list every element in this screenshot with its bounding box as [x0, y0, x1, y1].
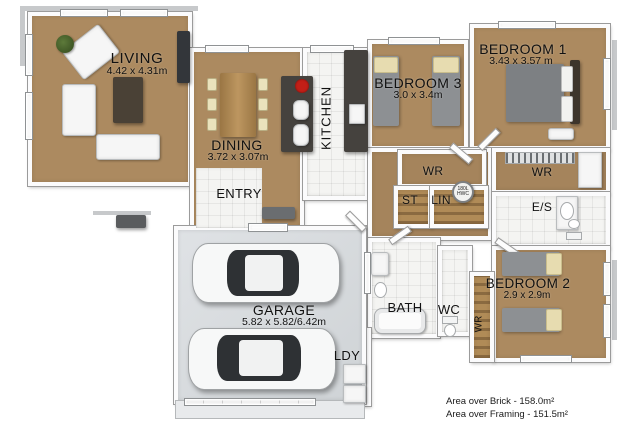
area-annotations: Area over Brick - 158.0m² Area over Fram…	[446, 396, 568, 421]
sink	[293, 100, 309, 120]
sink	[293, 124, 309, 146]
window	[25, 92, 33, 140]
garage-door	[184, 398, 316, 406]
wr-hall-label: WR	[423, 164, 444, 178]
bath-label: BATH	[388, 300, 423, 315]
wr-master-label: WR	[532, 165, 553, 179]
kitchen-label: KITCHEN	[319, 86, 334, 150]
toilet-icon	[442, 316, 458, 324]
hwc-type: HWC	[457, 192, 469, 197]
bedroom2-dims: 2.9 x 2.9m	[504, 290, 551, 301]
bedroom1-bench	[548, 128, 574, 140]
dining-chair	[207, 78, 217, 91]
living-dims: 4.42 x 4.31m	[107, 65, 168, 77]
plant-icon	[56, 35, 74, 53]
car-icon	[188, 328, 336, 390]
oven	[349, 104, 365, 124]
laundry-tub	[343, 385, 366, 403]
ensuite-label: E/S	[532, 200, 552, 214]
dining-chair	[258, 118, 268, 131]
eave-shadow	[612, 40, 617, 130]
pillow	[433, 57, 459, 73]
toilet-icon	[444, 324, 456, 337]
dining-chair	[258, 78, 268, 91]
washing-machine-icon	[343, 364, 366, 384]
store-label: ST	[402, 193, 418, 207]
window	[603, 262, 611, 296]
car-roof	[245, 255, 283, 291]
pillow	[561, 96, 573, 122]
basin-icon	[374, 282, 387, 298]
window	[60, 9, 108, 17]
window	[120, 9, 168, 17]
window	[498, 21, 556, 29]
hanging-clothes-icon	[505, 152, 575, 164]
wc-label: WC	[438, 302, 460, 317]
dining-table	[220, 73, 256, 137]
area-over-framing: Area over Framing - 151.5m²	[446, 409, 568, 422]
dining-dims: 3.72 x 3.07m	[208, 151, 269, 163]
window	[603, 58, 611, 110]
pillow	[561, 66, 573, 92]
toilet-icon	[568, 219, 580, 229]
bedroom3-dims: 3.0 x 3.4m	[393, 89, 442, 101]
bedroom2-label: BEDROOM 2	[486, 276, 571, 291]
window	[205, 45, 249, 53]
dining-chair	[207, 98, 217, 111]
floor-plan: 180L HWC LIVING 4.42 x 4.31m DINING 3.72…	[0, 0, 635, 444]
pillow	[546, 253, 562, 275]
linen-label: LIN	[431, 193, 451, 207]
dining-chair	[207, 118, 217, 131]
double-bed	[506, 64, 564, 122]
wr-bedroom2-label: WR	[474, 316, 485, 333]
window	[603, 304, 611, 338]
sofa	[62, 84, 96, 136]
window	[520, 355, 572, 363]
letterbox	[116, 215, 146, 228]
window	[364, 252, 371, 294]
garage-dims: 5.82 x 5.82/6.42m	[242, 316, 326, 328]
basin-icon	[560, 202, 574, 220]
bath-vanity	[371, 252, 389, 276]
entry-label: ENTRY	[216, 186, 261, 201]
hot-water-cylinder-icon: 180L HWC	[452, 181, 474, 203]
window	[25, 34, 33, 76]
sofa	[96, 134, 160, 160]
car-icon	[192, 243, 340, 303]
coffee-table	[113, 77, 143, 123]
eave-shadow	[20, 6, 198, 11]
cooktop-icon	[295, 79, 309, 93]
tv-cabinet	[177, 31, 190, 83]
pillow	[546, 309, 562, 331]
entry-bench	[262, 207, 295, 219]
area-over-brick: Area over Brick - 158.0m²	[446, 396, 568, 409]
wardrobe-shelves	[578, 152, 602, 188]
bedroom1-dims: 3.43 x 3.57 m	[489, 55, 553, 67]
pillow	[374, 57, 398, 73]
toilet-icon	[566, 232, 582, 240]
eave-shadow	[612, 260, 617, 340]
laundry-label: LDY	[334, 348, 360, 363]
car-roof	[239, 340, 283, 376]
kitchen-bench	[344, 50, 368, 152]
front-door	[248, 223, 288, 232]
window	[388, 37, 440, 45]
dining-chair	[258, 98, 268, 111]
